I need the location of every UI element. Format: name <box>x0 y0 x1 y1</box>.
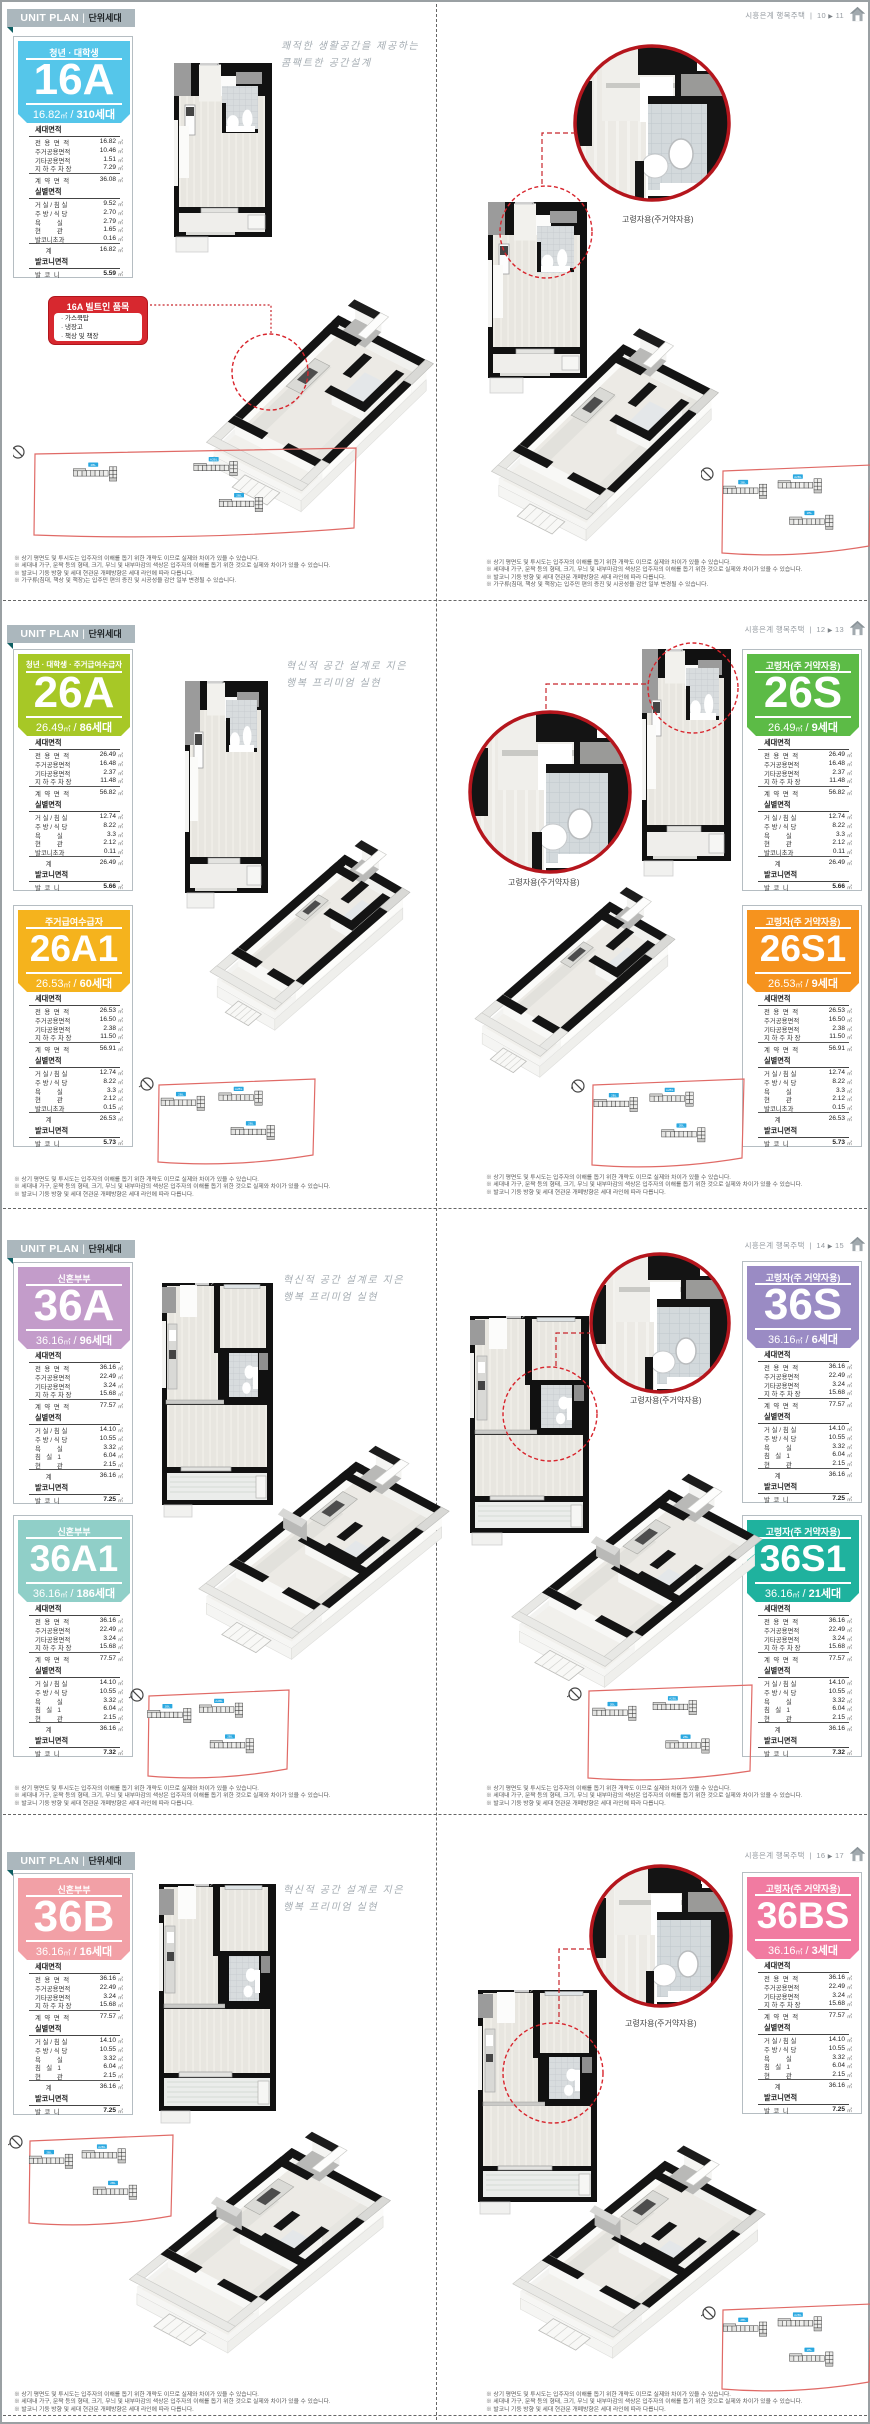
svg-text:2BL: 2BL <box>740 2318 746 2322</box>
svg-text:2BL: 2BL <box>807 2348 813 2352</box>
svg-text:A2BL: A2BL <box>794 2313 802 2317</box>
